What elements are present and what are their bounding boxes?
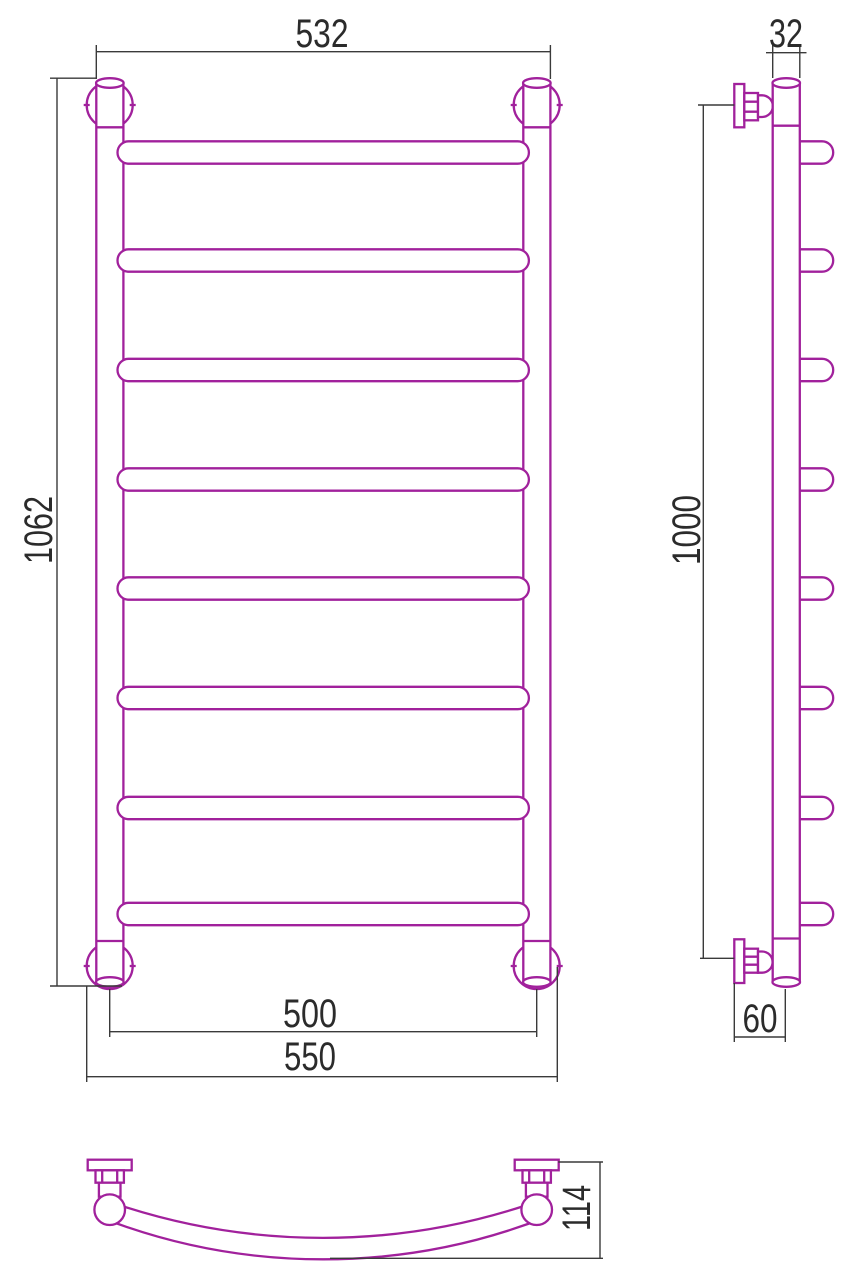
left-post — [96, 83, 123, 982]
rung-stub — [800, 797, 833, 819]
dim-tube-width: 32 — [769, 12, 803, 56]
rung-stub — [800, 687, 833, 709]
side-view — [734, 78, 833, 987]
bottom-fitting-body — [758, 952, 773, 973]
technical-drawing: 532 1062 500 550 32 1000 60 114 — [0, 0, 853, 1280]
top-fitting-body — [758, 95, 773, 117]
dim-bottom-outer-width: 550 — [284, 1035, 336, 1079]
rung-stub — [800, 141, 833, 163]
bottom-view-left-flange — [88, 1160, 132, 1171]
top-fitting-flange — [734, 84, 744, 127]
rung — [117, 687, 528, 709]
right-post-bottom-cap — [523, 977, 551, 987]
dim-bottom-offset: 60 — [743, 997, 778, 1041]
bottom-view-right-post-circle — [521, 1194, 552, 1225]
rungs — [117, 141, 528, 925]
dimension-lines — [50, 45, 807, 1258]
front-view — [84, 78, 563, 989]
rung — [117, 359, 528, 381]
dim-curve-depth: 114 — [555, 1185, 599, 1231]
dimension-labels: 532 1062 500 550 32 1000 60 114 — [17, 12, 803, 1231]
rung-stubs — [800, 141, 833, 925]
bottom-view-left-post-circle — [94, 1194, 125, 1225]
rung — [118, 141, 529, 163]
top-fitting-nut — [744, 93, 758, 120]
right-post-top-cap — [523, 78, 551, 88]
rung-stub — [800, 903, 833, 925]
side-tube-bottom-cap — [772, 977, 800, 987]
bottom-fitting-nut — [744, 949, 758, 973]
side-tube-top-cap — [772, 78, 800, 88]
dim-top-width: 532 — [296, 12, 349, 56]
dim-mount-height: 1000 — [665, 495, 709, 565]
bottom-view-right-nut — [523, 1170, 551, 1182]
side-tube — [773, 83, 800, 982]
rung-stub — [800, 249, 833, 271]
rung — [117, 903, 528, 925]
bracket-ticks — [84, 105, 563, 966]
rung-stub — [800, 468, 833, 490]
left-post-top-cap — [96, 78, 124, 88]
rung-stub — [800, 359, 833, 381]
bottom-view-left-nut — [96, 1170, 124, 1182]
rung — [118, 249, 529, 271]
curved-rail-inner-arc — [122, 1206, 524, 1238]
rung-stub — [800, 577, 833, 599]
bottom-view-right-flange — [515, 1160, 559, 1171]
rung — [117, 797, 528, 819]
rung — [117, 468, 528, 490]
dim-height: 1062 — [17, 496, 61, 564]
right-post — [523, 83, 550, 982]
rung — [117, 577, 528, 599]
bottom-view — [88, 1160, 559, 1260]
dim-bottom-inner-width: 500 — [283, 992, 337, 1036]
bottom-fitting-flange — [734, 939, 744, 983]
